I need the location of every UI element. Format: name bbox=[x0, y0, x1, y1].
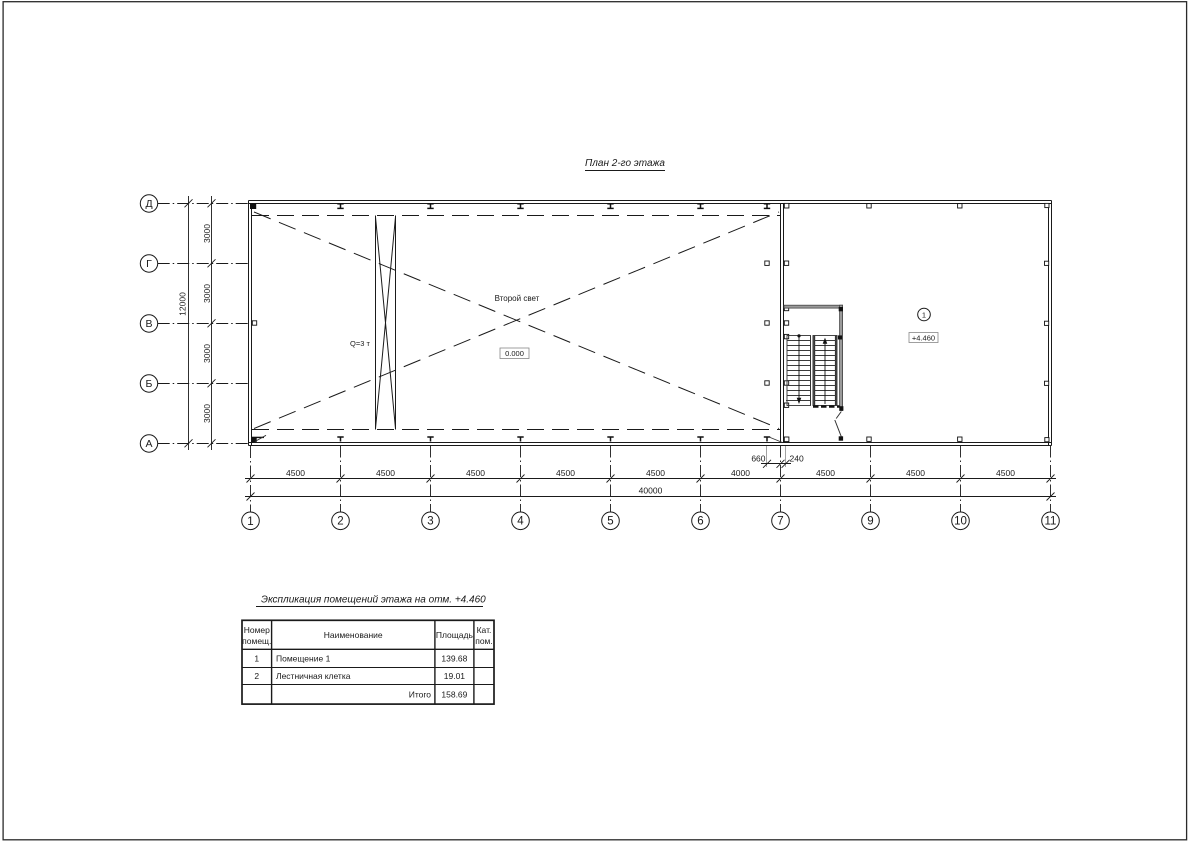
svg-text:В: В bbox=[145, 318, 152, 330]
svg-text:40000: 40000 bbox=[639, 486, 663, 496]
svg-text:0.000: 0.000 bbox=[505, 349, 524, 358]
svg-text:4: 4 bbox=[517, 516, 524, 528]
svg-text:+4.460: +4.460 bbox=[912, 334, 935, 343]
svg-text:5: 5 bbox=[607, 516, 613, 528]
svg-text:19.01: 19.01 bbox=[444, 671, 466, 681]
svg-text:4500: 4500 bbox=[906, 468, 925, 478]
svg-text:11: 11 bbox=[1045, 516, 1057, 528]
svg-text:2: 2 bbox=[337, 516, 343, 528]
svg-text:3000: 3000 bbox=[202, 284, 212, 303]
svg-text:2: 2 bbox=[254, 671, 259, 681]
svg-text:3000: 3000 bbox=[202, 224, 212, 243]
svg-text:1: 1 bbox=[247, 516, 253, 528]
svg-text:1: 1 bbox=[254, 654, 259, 664]
svg-text:6: 6 bbox=[697, 516, 703, 528]
svg-text:4500: 4500 bbox=[286, 468, 305, 478]
svg-text:Кат.: Кат. bbox=[477, 625, 492, 635]
svg-text:Второй свет: Второй свет bbox=[495, 294, 540, 303]
svg-text:10: 10 bbox=[954, 516, 967, 528]
svg-text:А: А bbox=[145, 438, 152, 450]
svg-text:Помещение 1: Помещение 1 bbox=[276, 654, 331, 664]
svg-text:Q=3 т: Q=3 т bbox=[350, 339, 370, 348]
svg-text:158.69: 158.69 bbox=[441, 690, 467, 700]
svg-text:4500: 4500 bbox=[556, 468, 575, 478]
svg-text:помещ.: помещ. bbox=[242, 636, 271, 646]
svg-text:3: 3 bbox=[427, 516, 433, 528]
svg-text:7: 7 bbox=[777, 516, 783, 528]
svg-text:12000: 12000 bbox=[178, 292, 188, 316]
svg-text:4000: 4000 bbox=[731, 468, 750, 478]
svg-text:Г: Г bbox=[146, 258, 152, 270]
svg-text:660: 660 bbox=[751, 454, 765, 464]
svg-text:Б: Б bbox=[146, 378, 153, 390]
svg-text:4500: 4500 bbox=[816, 468, 835, 478]
svg-text:Номер: Номер bbox=[244, 625, 270, 635]
svg-text:240: 240 bbox=[790, 454, 804, 464]
svg-text:3000: 3000 bbox=[202, 404, 212, 423]
svg-text:4500: 4500 bbox=[376, 468, 395, 478]
svg-text:Итого: Итого bbox=[409, 690, 432, 700]
svg-text:Наименование: Наименование bbox=[324, 630, 383, 640]
svg-text:4500: 4500 bbox=[646, 468, 665, 478]
svg-text:4500: 4500 bbox=[466, 468, 485, 478]
svg-text:пом.: пом. bbox=[475, 636, 493, 646]
svg-text:Лестничная клетка: Лестничная клетка bbox=[276, 671, 351, 681]
svg-text:Д: Д bbox=[145, 198, 152, 210]
svg-text:1: 1 bbox=[922, 311, 926, 320]
svg-text:План 2-го этажа: План 2-го этажа bbox=[585, 158, 665, 169]
svg-text:4500: 4500 bbox=[996, 468, 1015, 478]
svg-text:139.68: 139.68 bbox=[441, 654, 467, 664]
svg-text:9: 9 bbox=[867, 516, 873, 528]
svg-text:3000: 3000 bbox=[202, 344, 212, 363]
svg-text:Площадь: Площадь bbox=[436, 630, 474, 640]
svg-text:Экспликация помещений этажа на: Экспликация помещений этажа на отм. +4.4… bbox=[261, 595, 486, 606]
